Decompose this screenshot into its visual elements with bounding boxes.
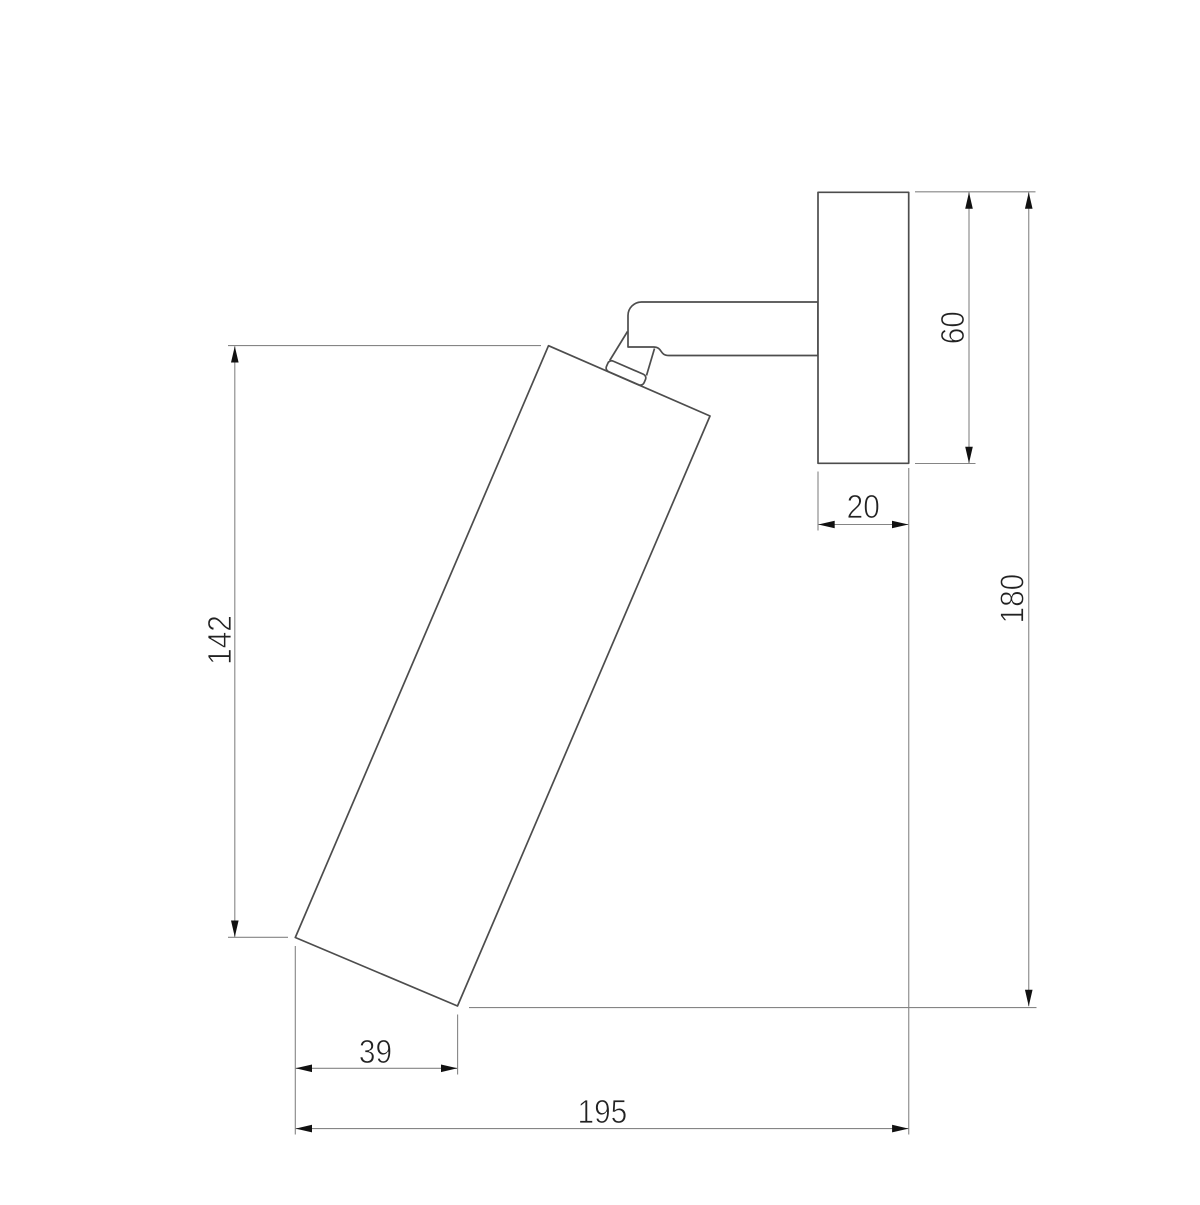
svg-text:180: 180: [993, 574, 1031, 624]
svg-text:142: 142: [200, 615, 238, 665]
svg-text:60: 60: [933, 311, 971, 344]
svg-text:20: 20: [847, 487, 880, 525]
svg-text:195: 195: [578, 1092, 628, 1130]
svg-text:39: 39: [359, 1032, 392, 1070]
